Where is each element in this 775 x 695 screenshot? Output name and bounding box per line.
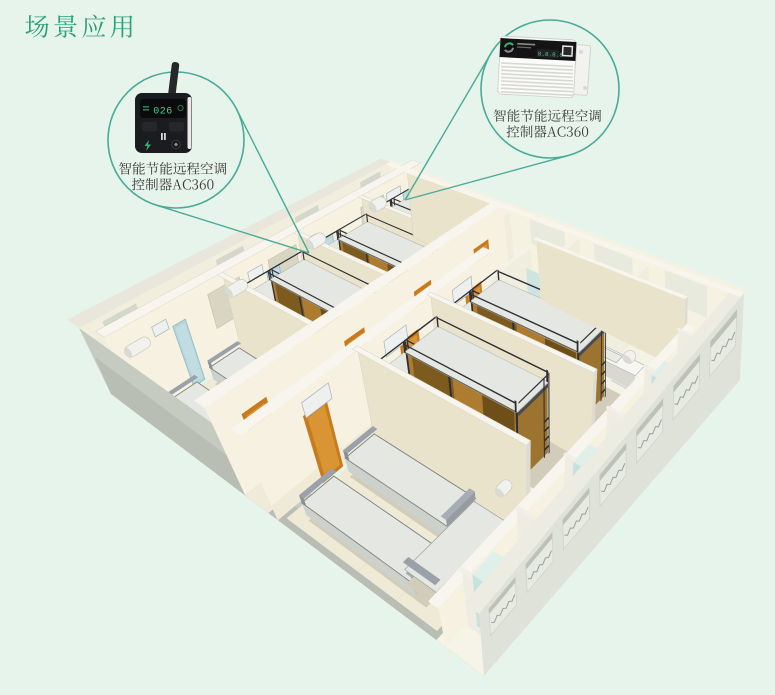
svg-text:026: 026 <box>153 107 173 118</box>
svg-text:8.8.8.8: 8.8.8.8 <box>538 51 564 59</box>
